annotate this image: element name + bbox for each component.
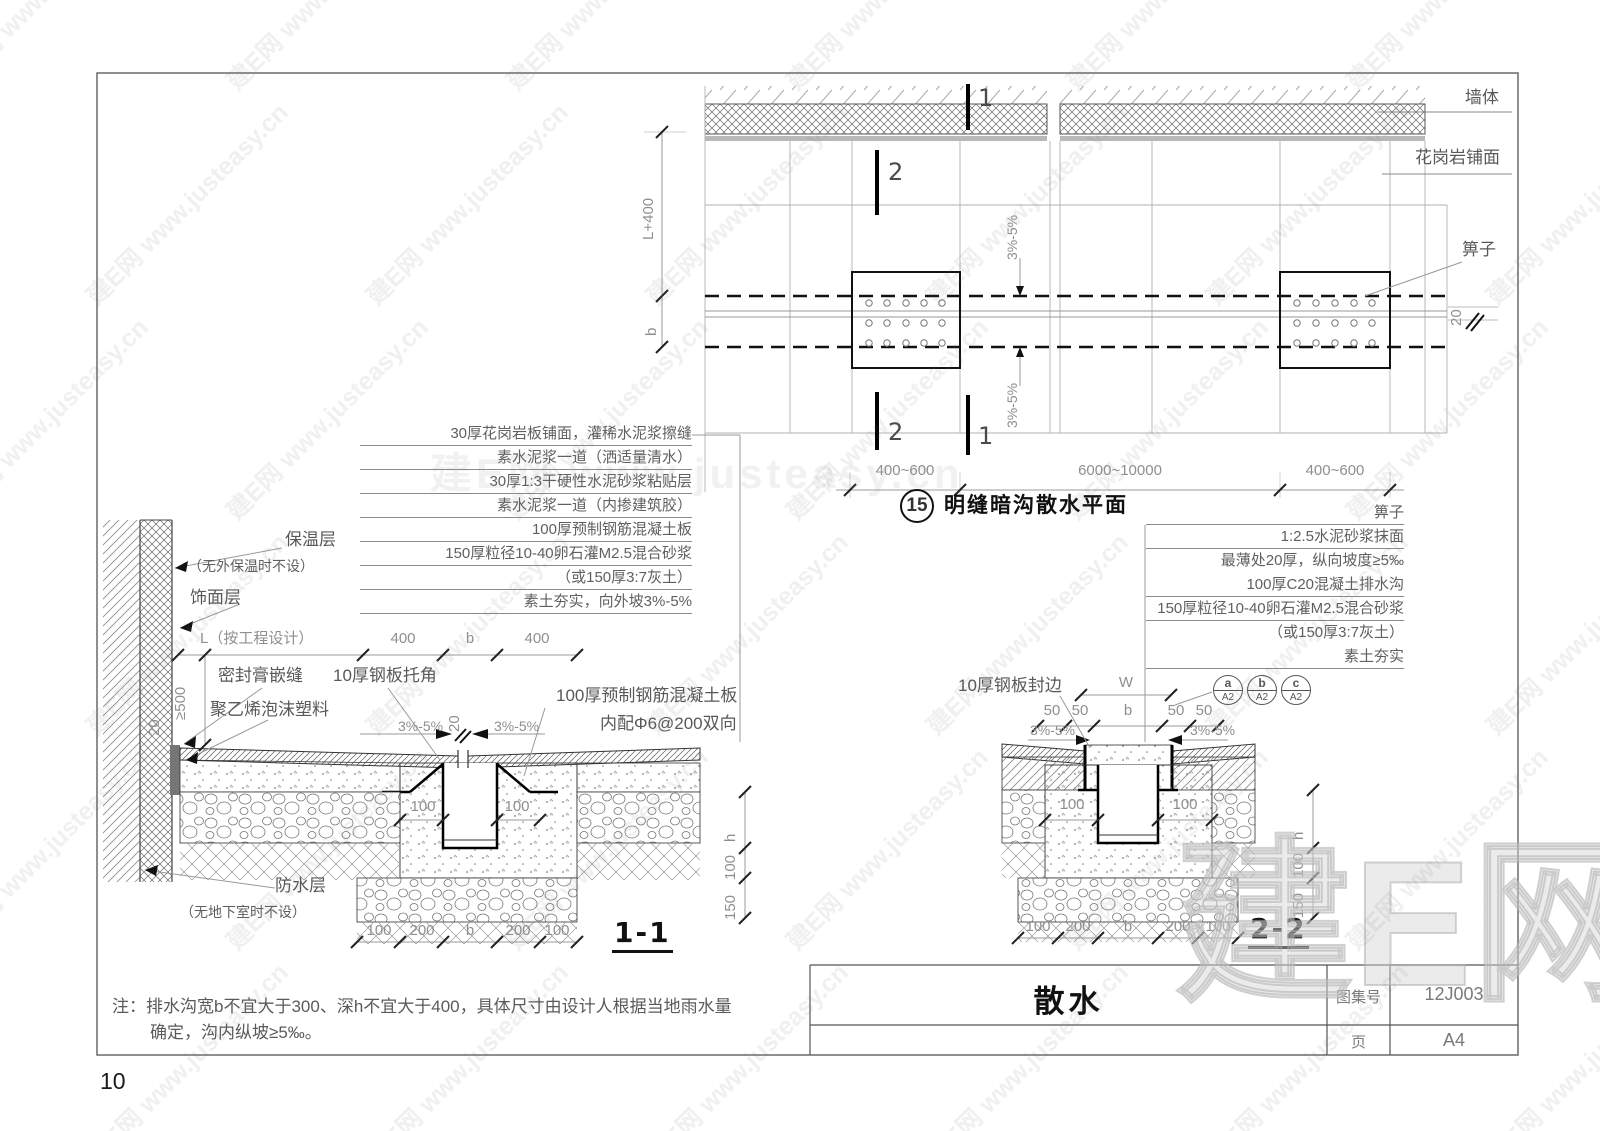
note-line: 30厚花岗岩板铺面，灌稀水泥浆擦缝 — [360, 422, 692, 446]
dim-150v-1-1: 150 — [722, 884, 739, 920]
slab-label-line2: 内配Φ6@200双向 — [600, 714, 737, 734]
bubble-letter: b — [1248, 676, 1276, 691]
drawing-sheet: 墙体 花岗岩铺面 箅子 20 L+400 b 3%-5% 3%-5% 1 2 2… — [0, 0, 1600, 1131]
section-1-1-title: 1-1 — [612, 916, 673, 953]
note-line: 最薄处20厚，纵向坡度≥5‰ — [1146, 549, 1404, 573]
dim-400-left: 400 — [380, 630, 426, 647]
titleblock-page-label: 页 — [1327, 1031, 1390, 1052]
dim-50a: 50 — [1040, 702, 1064, 719]
plan-wall-label: 墙体 — [1465, 88, 1499, 108]
dim-bottom-200a-2-2: 200 — [1060, 918, 1096, 935]
note-line: 150厚粒径10-40卵石灌M2.5混合砂浆 — [1146, 597, 1404, 621]
dim-bottom-100b-1-1: 100 — [542, 922, 572, 939]
detail-bubble-c: c A2 — [1281, 675, 1311, 705]
plan-dim-b: b — [643, 308, 660, 336]
plan-title: 明缝暗沟散水平面 — [944, 494, 1128, 518]
titleblock-atlas-label: 图集号 — [1327, 986, 1390, 1007]
dim-bottom-200a-1-1: 200 — [404, 922, 440, 939]
dim-50d: 50 — [1192, 702, 1216, 719]
plan-detail-number-bubble: 15 — [900, 489, 934, 523]
waterproof-label: 防水层 — [275, 876, 326, 896]
waterproof-note: （无地下室时不设） — [180, 904, 306, 920]
dim-100-right-1-1: 100 — [500, 798, 534, 815]
dim-100v-2-2: 100 — [1290, 848, 1307, 878]
titleblock-drawing-title: 散水 — [810, 976, 1327, 1021]
dim-400-right: 400 — [514, 630, 560, 647]
dim-bottom-200b-1-1: 200 — [500, 922, 536, 939]
section-2-2-title: 2-2 — [1248, 912, 1309, 949]
plan-dim-l400: L+400 — [640, 178, 657, 240]
dim-b-top: b — [456, 630, 484, 647]
dim-bottom-100a-1-1: 100 — [364, 922, 394, 939]
note-line: （或150厚3:7灰土） — [360, 566, 692, 590]
slope-right-1-1: 3%-5% — [494, 718, 539, 734]
plan-section-marker-1-top: 1 — [978, 84, 993, 112]
dim-h-2-2: h — [1290, 806, 1307, 840]
dim-20-gap: 20 — [446, 702, 463, 732]
detail-bubble-b: b A2 — [1247, 675, 1277, 705]
dim-50c: 50 — [1164, 702, 1188, 719]
steel-angle-label: 10厚钢板托角 — [333, 666, 437, 686]
plan-slope-lower: 3%-5% — [1004, 386, 1020, 428]
dim-b-2-2: b — [1114, 702, 1142, 719]
bubble-sheet: A2 — [1214, 691, 1242, 704]
dim-100v-1-1: 100 — [722, 850, 739, 880]
bubble-sheet: A2 — [1282, 691, 1310, 704]
note-line: 100厚预制钢筋混凝土板 — [360, 518, 692, 542]
note-line: 150厚粒径10-40卵石灌M2.5混合砂浆 — [360, 542, 692, 566]
note-line: 素水泥浆一道（洒适量清水） — [360, 446, 692, 470]
general-note-line1: 注：排水沟宽b不宜大于300、深h不宜大于400，具体尺寸由设计人根据当地雨水量 — [112, 992, 732, 1017]
sealant-label: 密封膏嵌缝 — [218, 666, 303, 686]
dim-100-right-2-2: 100 — [1168, 796, 1202, 813]
note-line: 100厚C20混凝土排水沟 — [1146, 573, 1404, 597]
dim-100-left-2-2: 100 — [1055, 796, 1089, 813]
insulation-label: 保温层 — [285, 530, 336, 550]
section-1-1-notes: 30厚花岗岩板铺面，灌稀水泥浆擦缝 素水泥浆一道（洒适量清水） 30厚1:3干硬… — [360, 422, 692, 614]
dim-bottom-b-2-2: b — [1114, 918, 1142, 935]
bubble-letter: a — [1214, 676, 1242, 691]
plan-section-marker-2-bottom: 2 — [888, 418, 903, 446]
dim-20-wall: 20 — [146, 706, 163, 736]
note-line: 箅子 — [1146, 501, 1404, 525]
titleblock-page-value: A4 — [1390, 1030, 1518, 1051]
bubble-sheet: A2 — [1248, 691, 1276, 704]
plan-slope-upper: 3%-5% — [1004, 218, 1020, 260]
dim-h-1-1: h — [722, 808, 739, 842]
plan-dim-20: 20 — [1448, 292, 1465, 326]
plan-section-marker-2-top: 2 — [888, 158, 903, 186]
slope-right-2-2: 3%-5% — [1190, 722, 1235, 738]
note-line: 素水泥浆一道（内掺建筑胶） — [360, 494, 692, 518]
note-line: 素土夯实 — [1146, 645, 1404, 669]
dim-ge500: ≥500 — [172, 662, 189, 720]
bubble-letter: c — [1282, 676, 1310, 691]
general-note-line2: 确定，沟内纵坡≥5‰。 — [150, 1018, 322, 1043]
plan-paving-label: 花岗岩铺面 — [1415, 148, 1500, 168]
detail-bubble-a: a A2 — [1213, 675, 1243, 705]
plan-dim-middle: 6000~10000 — [1060, 462, 1180, 479]
note-line: 1:2.5水泥砂浆抹面 — [1146, 525, 1404, 549]
plan-dim-right: 400~600 — [1290, 462, 1380, 479]
dim-bottom-200b-2-2: 200 — [1160, 918, 1196, 935]
dim-100-left-1-1: 100 — [406, 798, 440, 815]
dim-bottom-b-1-1: b — [456, 922, 484, 939]
dim-bottom-100a-2-2: 100 — [1023, 918, 1053, 935]
dim-bottom-100b-2-2: 100 — [1203, 918, 1233, 935]
note-line: 素土夯实，向外坡3%-5% — [360, 590, 692, 614]
section-2-2-notes: 箅子 1:2.5水泥砂浆抹面 最薄处20厚，纵向坡度≥5‰ 100厚C20混凝土… — [1146, 501, 1404, 669]
plan-dim-left: 400~600 — [860, 462, 950, 479]
plan-section-marker-1-bottom: 1 — [978, 422, 993, 450]
steel-edge-label: 10厚钢板封边 — [958, 676, 1062, 696]
foam-label: 聚乙烯泡沫塑料 — [210, 700, 329, 720]
dim-l-label: L（按工程设计） — [200, 630, 313, 647]
dim-50b: 50 — [1068, 702, 1092, 719]
note-line: 30厚1:3干硬性水泥砂浆粘贴层 — [360, 470, 692, 494]
plan-grate-label: 箅子 — [1462, 240, 1496, 260]
insulation-note: （无外保温时不设） — [188, 558, 314, 574]
dim-w-2-2: W — [1112, 674, 1140, 691]
titleblock-atlas-number: 12J003 — [1390, 984, 1518, 1005]
slab-label-line1: 100厚预制钢筋混凝土板 — [556, 686, 737, 706]
slope-left-1-1: 3%-5% — [398, 718, 443, 734]
note-line: （或150厚3:7灰土） — [1146, 621, 1404, 645]
slope-left-2-2: 3%-5% — [1030, 722, 1075, 738]
finish-layer-label: 饰面层 — [190, 588, 241, 608]
sheet-page-number: 10 — [100, 1068, 126, 1095]
